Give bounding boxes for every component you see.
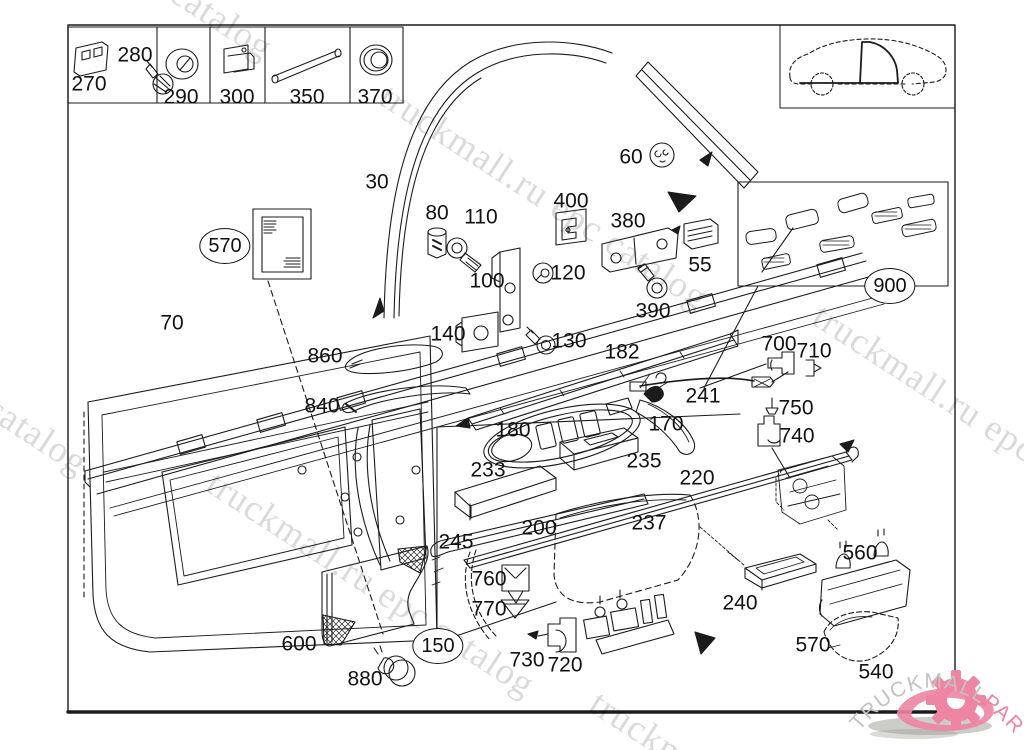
- clip-kit-box-900: [704, 182, 948, 388]
- highlighted-door: [800, 42, 898, 83]
- screw-280-icon: [146, 60, 173, 94]
- grommet-120: [533, 263, 553, 283]
- fasteners-table: [68, 27, 403, 103]
- map-pocket-237: [554, 494, 715, 654]
- trim-strip-200: [431, 494, 648, 557]
- clip-270-icon: [74, 42, 108, 76]
- switch-bezel-180: [478, 392, 646, 481]
- connector-55: [672, 219, 718, 249]
- switch-cluster: [584, 590, 674, 654]
- grommet-60: [650, 143, 674, 167]
- grommet-370-icon: [360, 45, 392, 75]
- diagram-frame: [68, 25, 955, 712]
- bracket-380: [602, 228, 678, 272]
- bracket-100: [492, 248, 520, 332]
- funnel-770: [501, 600, 529, 618]
- pin-750: [766, 398, 778, 414]
- clip-710: [806, 360, 821, 376]
- car-location-thumbnail: [780, 25, 955, 108]
- molding-220: [464, 440, 858, 568]
- grommet-290-icon: [166, 49, 198, 79]
- lamp-base-240: [728, 552, 816, 590]
- fastener-880: [374, 646, 415, 686]
- clip-400: [556, 209, 586, 245]
- clip-300-icon: [224, 45, 254, 73]
- door-inner-panel: [84, 336, 437, 652]
- connector-720: [528, 618, 576, 652]
- funnel-760: [502, 565, 529, 603]
- label-sticker-570: [253, 209, 383, 634]
- screw-110: [447, 238, 481, 272]
- screw-390: [638, 264, 667, 298]
- truckmallparts-logo: TRUCKMALLPARTS: [838, 638, 1024, 750]
- rod-350-icon: [272, 49, 341, 83]
- armrest-pad-233: [455, 466, 556, 520]
- parts-catalog-page: truckmall.ru epc catalogtruckmall.ru epc…: [0, 0, 1024, 750]
- clip-80: [428, 228, 446, 258]
- bracket-140: [456, 312, 498, 352]
- window-frame-seal-30: [373, 42, 758, 318]
